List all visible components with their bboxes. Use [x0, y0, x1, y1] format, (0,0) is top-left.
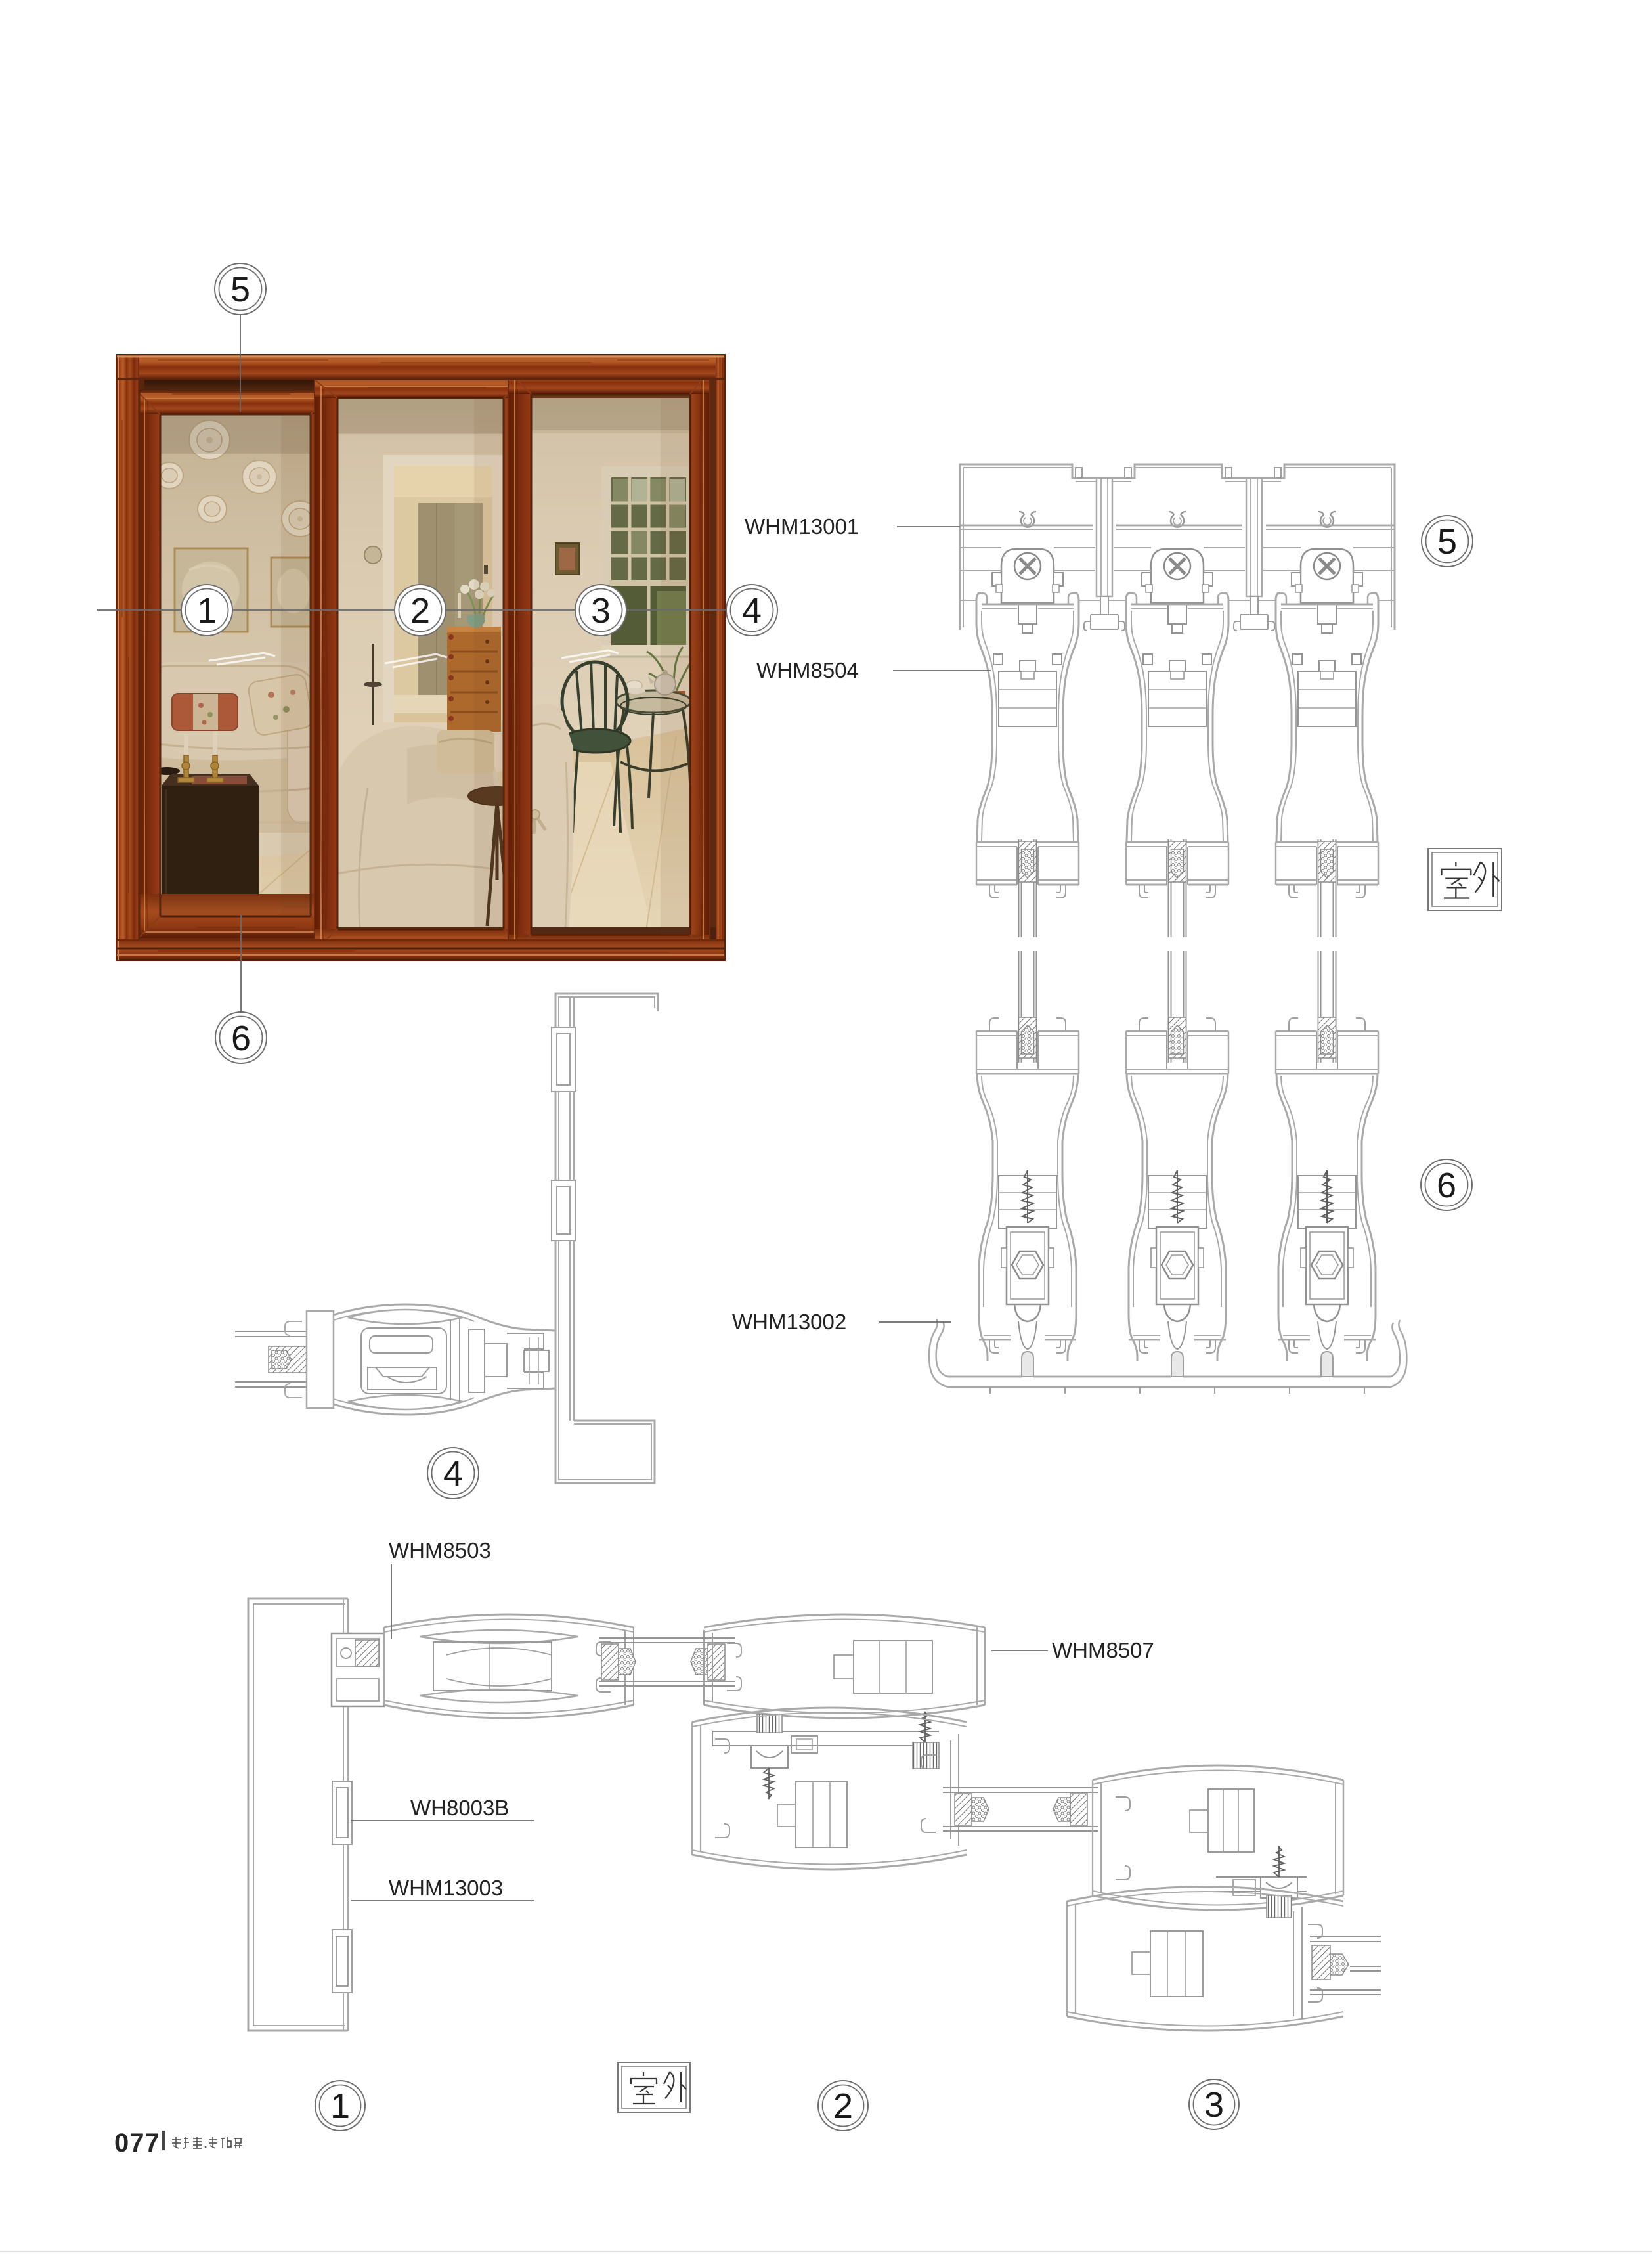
svg-text:4: 4	[443, 1454, 463, 1494]
svg-text:4: 4	[742, 591, 762, 631]
svg-text:2: 2	[833, 2087, 853, 2126]
svg-text:WHM13003: WHM13003	[389, 1876, 503, 1900]
svg-text:WHM8504: WHM8504	[756, 658, 859, 682]
svg-text:3: 3	[591, 591, 611, 631]
svg-text:WHM8503: WHM8503	[389, 1538, 491, 1562]
svg-text:WHM8507: WHM8507	[1052, 1638, 1154, 1662]
svg-text:2: 2	[410, 591, 430, 631]
svg-text:WHM13002: WHM13002	[732, 1310, 846, 1334]
svg-text:5: 5	[230, 270, 250, 309]
svg-text:1: 1	[197, 591, 217, 631]
svg-text:077: 077	[114, 2129, 160, 2158]
svg-text:WH8003B: WH8003B	[410, 1796, 509, 1820]
svg-text:5: 5	[1437, 522, 1457, 562]
svg-text:3: 3	[1204, 2085, 1224, 2125]
svg-text:WHM13001: WHM13001	[745, 514, 859, 539]
svg-text:1: 1	[330, 2087, 350, 2126]
svg-text:6: 6	[231, 1019, 251, 1058]
svg-text:6: 6	[1437, 1166, 1456, 1205]
